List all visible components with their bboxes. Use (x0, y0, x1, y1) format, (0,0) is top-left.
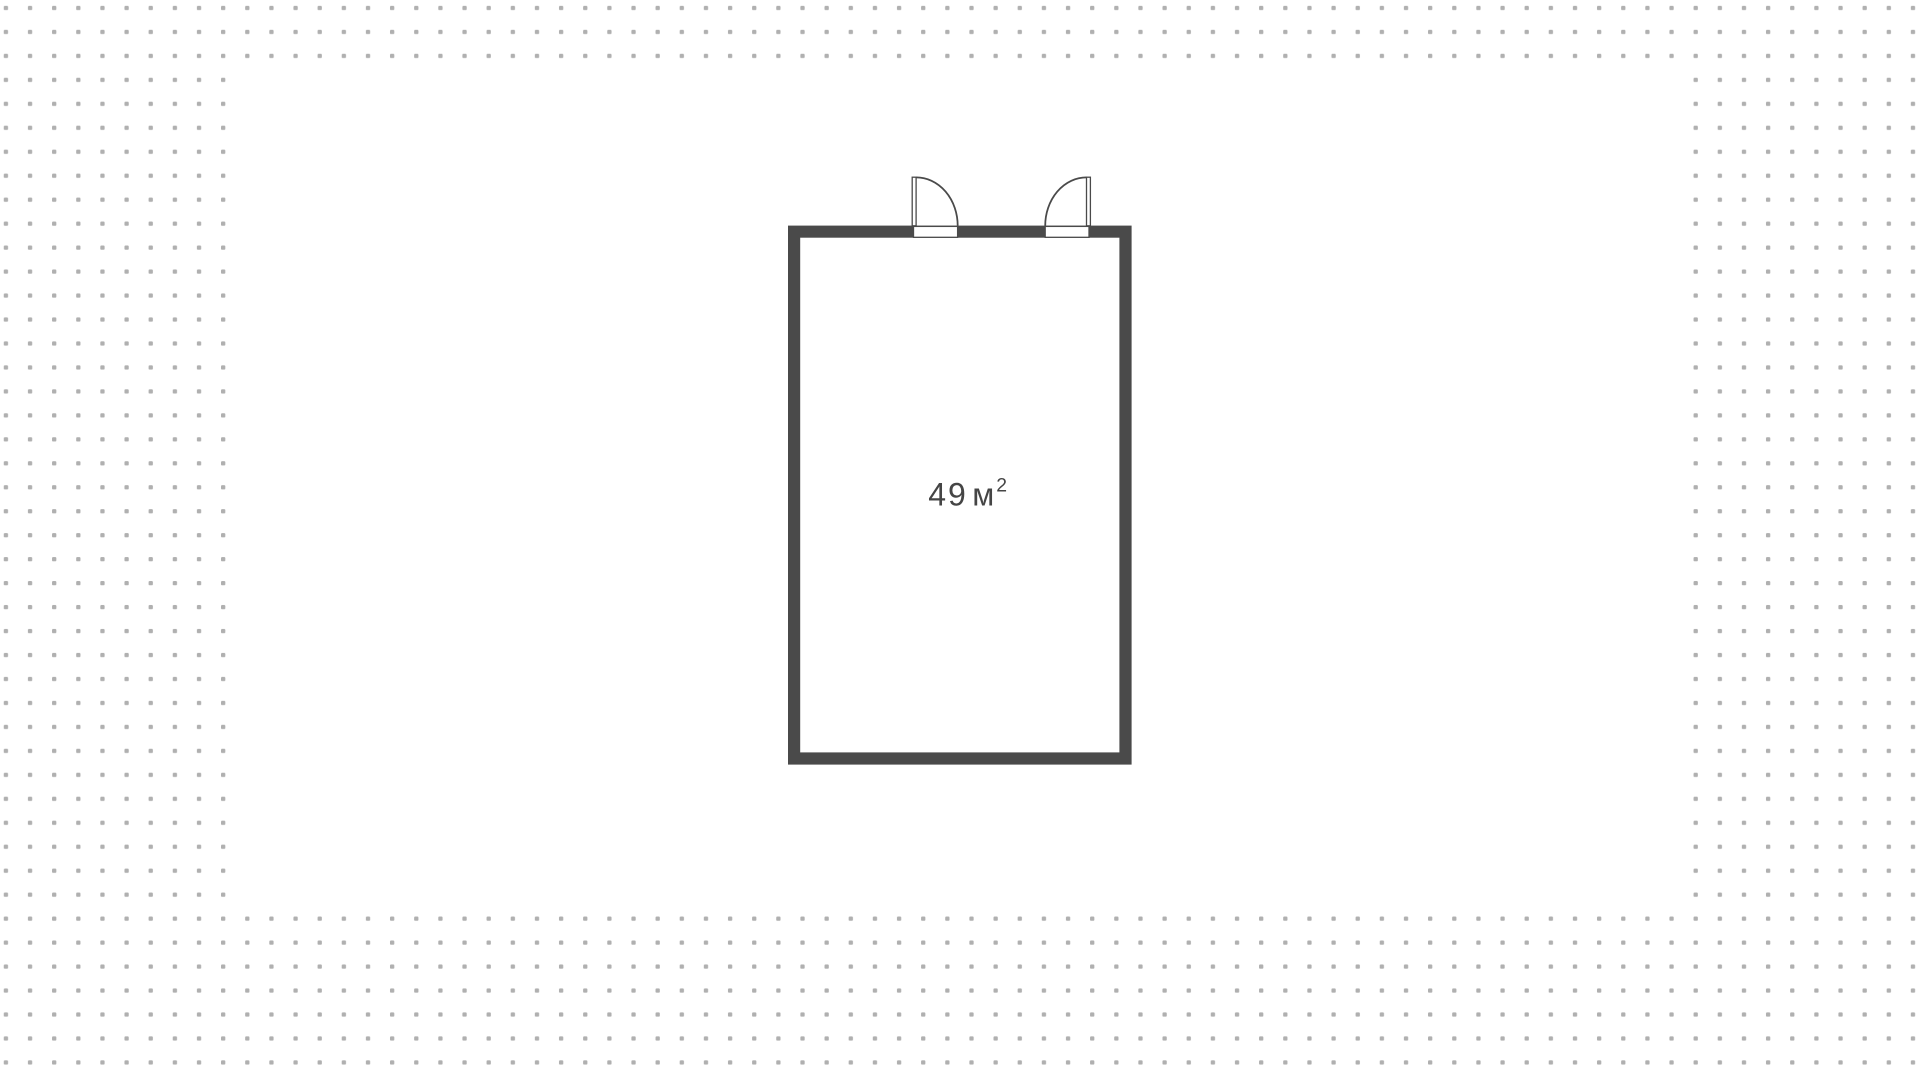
svg-text:м: м (972, 477, 994, 513)
svg-text:2: 2 (996, 474, 1007, 496)
svg-text:49: 49 (928, 477, 968, 513)
